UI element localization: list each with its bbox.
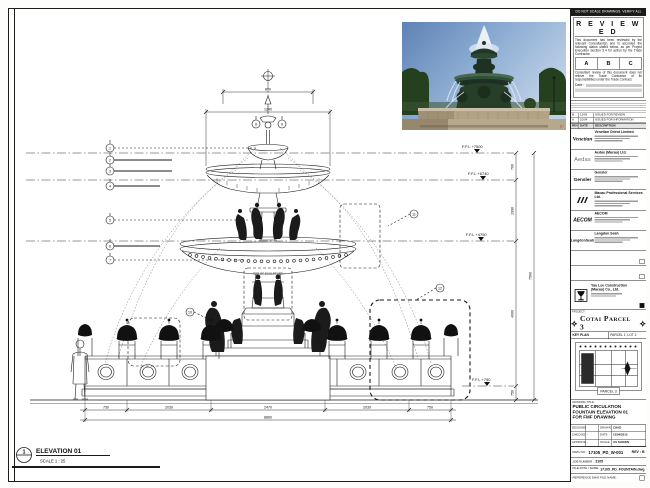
svg-text:1: 1 <box>109 146 111 150</box>
reference-dwg-row: REFERENCE DWG FILE NAME : <box>571 474 646 482</box>
aedas-logo: Aedas <box>571 149 594 169</box>
stamp-status-options: A B C <box>575 58 642 70</box>
consultant-langdon-seah: LangdonSeah Langdon Seah <box>571 231 646 251</box>
photo-watermark: © <box>560 125 563 129</box>
stamp-body-1: This document has been reviewed by the r… <box>575 39 642 57</box>
stamp-body-2: Consultant review of this document does … <box>575 71 642 82</box>
project-title: Cotai Parcel 3 <box>580 315 637 332</box>
svg-text:9: 9 <box>281 122 283 126</box>
contractor-logo <box>571 281 591 310</box>
title-block: DO NOT SCALE DRAWINGS. VERIFY ALL DIMENS… <box>570 8 646 482</box>
dwg-number-value: 17105_PD_W-001 <box>588 450 623 455</box>
do-not-scale-note: DO NOT SCALE DRAWINGS. VERIFY ALL DIMENS… <box>571 8 646 16</box>
spare-consultant-box <box>571 251 646 266</box>
svg-text:760: 760 <box>511 164 515 170</box>
key-plan-block: KEY PLAN PARCEL 1, LOT 2 <box>571 332 646 400</box>
dwg-number-row: DWG NO : 17105_PD_W-001 REV : B <box>571 447 646 458</box>
spare-consultant-box <box>571 266 646 281</box>
level-markers: F.F.L +7500 F.F.L +6740 F.F.L +4750 F.F.… <box>462 144 491 386</box>
stamp-option-c[interactable]: C <box>620 58 642 69</box>
fountain-reference-photo: © <box>402 22 566 130</box>
consultant-venetian: Venetian Venetian Orient Limited <box>571 129 646 149</box>
svg-text:4: 4 <box>109 184 111 188</box>
bollard-posts <box>78 319 458 359</box>
svg-text:SCALE 1 : 25: SCALE 1 : 25 <box>40 459 66 464</box>
venetian-logo: Venetian <box>571 129 594 149</box>
svg-text:750: 750 <box>103 406 109 410</box>
svg-text:10: 10 <box>188 310 192 314</box>
svg-text:750: 750 <box>427 406 433 410</box>
project-emblem-icon <box>640 320 646 327</box>
consultant-checkbox[interactable] <box>640 274 645 279</box>
project-emblem-icon <box>571 320 577 327</box>
svg-text:1: 1 <box>22 450 25 456</box>
revision-table: B 12/05 ISSUED FOR REVIEW A 10/04 ISSUED… <box>571 101 646 129</box>
elevation-title-block: 1 ELEVATION 01 SCALE 1 : 25 <box>12 448 160 468</box>
svg-text:6: 6 <box>109 244 111 248</box>
consultant-aecom: AECOM AECOM <box>571 210 646 230</box>
sculpture-note: TOP OF SCULPTURE <box>253 272 283 276</box>
langdon-seah-logo: LangdonSeah <box>571 231 594 251</box>
stamp-date-field[interactable] <box>586 84 642 87</box>
consultant-mps: Macau Professional Services Ltd. <box>571 190 646 210</box>
contractor-block: Yau Lee Construction (Macau) Co., Ltd. <box>571 281 646 310</box>
project-title-block: PROJECT : Cotai Parcel 3 <box>571 310 646 332</box>
level-lines <box>26 153 514 386</box>
gensler-logo: Gensler <box>571 170 594 190</box>
svg-text:7: 7 <box>109 258 111 262</box>
project-label: PROJECT : <box>571 310 646 314</box>
svg-text:ELEVATION 01: ELEVATION 01 <box>36 448 82 455</box>
fountain-structure <box>180 96 356 400</box>
svg-text:1990: 1990 <box>511 207 515 215</box>
aecom-logo: AECOM <box>571 210 594 230</box>
consultant-aedas: Aedas Aedas (Macau) Ltd. <box>571 149 646 169</box>
svg-text:3: 3 <box>109 169 111 173</box>
dwg-rev: REV : B <box>632 451 645 455</box>
svg-text:890: 890 <box>265 88 271 92</box>
svg-text:2030: 2030 <box>363 406 371 410</box>
review-stamp: R E V I E W E D This document has been r… <box>571 16 646 101</box>
stamp-date-label: Date : <box>575 84 584 88</box>
svg-text:4000: 4000 <box>511 310 515 318</box>
consultant-checkbox[interactable] <box>640 259 645 264</box>
drawing-title-block: DRAWING TITLE : PUBLIC CIRCULATION FOUNT… <box>571 400 646 425</box>
svg-text:750: 750 <box>511 390 515 396</box>
job-number-row: JOB NUMBER : 3105 <box>571 458 646 466</box>
svg-text:2470: 2470 <box>264 406 272 410</box>
photo-pavement-shadow <box>402 119 448 130</box>
svg-text:12: 12 <box>438 286 442 290</box>
stamp-option-b[interactable]: B <box>598 58 620 69</box>
svg-text:1240: 1240 <box>264 108 272 112</box>
photo-basin-shadow <box>420 125 548 128</box>
basin-bead-moulding <box>189 254 348 263</box>
key-plan-map: PARCEL 3 <box>574 341 644 397</box>
stamp-signature-bar <box>575 89 642 93</box>
drawing-info-table: DESIGNED DRAWNCHAD CHECKED- DATE12/04/20… <box>571 425 646 447</box>
key-plan-sub: PARCEL 1, LOT 2 <box>609 332 646 339</box>
svg-text:F.F.L +750: F.F.L +750 <box>472 377 491 382</box>
stamp-title: R E V I E W E D <box>575 19 642 37</box>
svg-text:F.F.L +6740: F.F.L +6740 <box>468 171 489 176</box>
svg-text:11: 11 <box>412 212 416 216</box>
drawing-title-line: FOR FMF DRAWING <box>573 415 645 420</box>
contractor-checkbox[interactable] <box>640 303 645 308</box>
svg-text:F.F.L +4750: F.F.L +4750 <box>466 232 487 237</box>
file-path-row: FILE PATH / NAME : 17105_PD_FOUNTAIN.dwg <box>571 466 646 474</box>
svg-text:2030: 2030 <box>165 406 173 410</box>
key-plan-label: KEY PLAN <box>571 332 609 339</box>
svg-text:PARCEL 3: PARCEL 3 <box>600 389 617 393</box>
svg-text:5: 5 <box>109 218 111 222</box>
svg-text:8860: 8860 <box>264 416 272 420</box>
revision-table-header: REV DATE DESCRIPTION <box>571 123 646 129</box>
dwg-number-label: DWG NO : <box>573 451 587 454</box>
triple-slash-logo <box>571 190 594 210</box>
drawing-sheet: F.F.L +7500 F.F.L +6740 F.F.L +4750 F.F.… <box>0 0 650 488</box>
svg-text:8: 8 <box>255 122 257 126</box>
svg-text:2: 2 <box>109 158 111 162</box>
stamp-option-a[interactable]: A <box>576 58 598 69</box>
human-scale-figure <box>71 340 89 399</box>
consultant-gensler: Gensler Gensler <box>571 170 646 190</box>
svg-text:F.F.L +7500: F.F.L +7500 <box>462 144 483 149</box>
svg-text:7500: 7500 <box>529 272 533 280</box>
